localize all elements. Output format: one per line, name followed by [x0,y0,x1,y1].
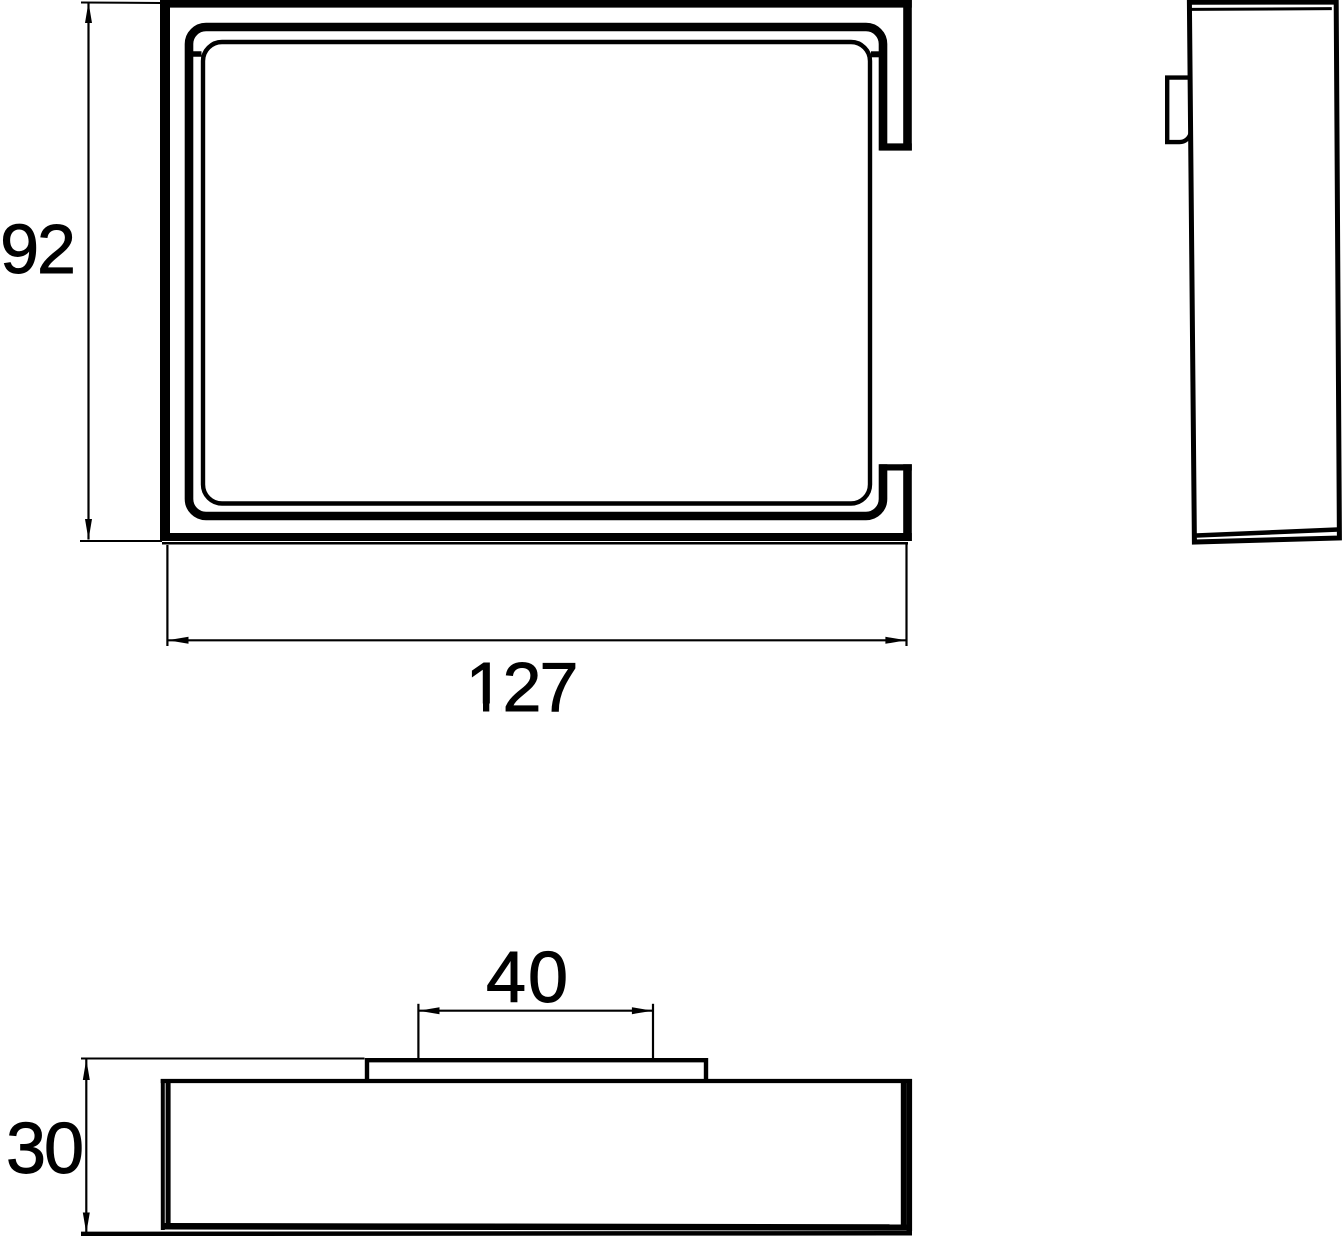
svg-text:127: 127 [466,648,577,726]
svg-text:40: 40 [486,938,570,1018]
svg-text:30: 30 [6,1109,82,1189]
svg-text:92: 92 [0,210,74,288]
